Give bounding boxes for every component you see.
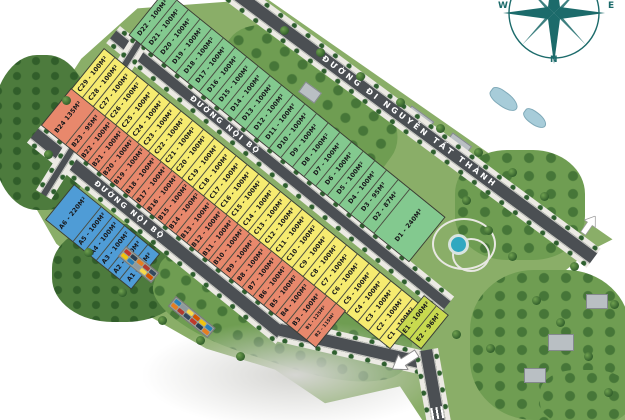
building	[548, 334, 574, 351]
compass-east-label: E	[608, 1, 614, 11]
tree-icon	[604, 388, 613, 397]
compass-north-label: N	[550, 55, 558, 65]
tree-icon	[118, 288, 127, 297]
tree-icon	[508, 252, 517, 261]
tree-icon	[486, 344, 495, 353]
pond	[521, 106, 550, 132]
tree-icon	[532, 296, 541, 305]
park-bottom-right	[540, 370, 625, 420]
plot-label-A6: A6 - 220M²	[58, 196, 88, 231]
pond	[487, 84, 522, 115]
tree-icon	[236, 352, 245, 361]
tree-icon	[436, 124, 445, 133]
tree-icon	[610, 300, 619, 309]
tree-icon	[196, 336, 205, 345]
playground-pool	[448, 234, 469, 255]
tree-icon	[484, 226, 493, 235]
tree-icon	[452, 330, 461, 339]
tree-icon	[316, 48, 325, 57]
tree-icon	[556, 318, 565, 327]
tree-icon	[44, 150, 53, 159]
building	[524, 368, 546, 383]
site-plan-map: ĐƯỜNG ĐI NGUYỄN TẤT THÀNH ĐƯỜNG NỘI BỘ Đ…	[0, 0, 625, 420]
tree-icon	[356, 72, 365, 81]
tree-icon	[158, 316, 167, 325]
building	[586, 294, 608, 309]
tree-icon	[62, 96, 71, 105]
tree-icon	[474, 148, 483, 157]
crosswalk	[430, 406, 444, 420]
tree-icon	[570, 262, 579, 271]
compass-west-label: W	[498, 1, 508, 11]
tree-icon	[540, 192, 549, 201]
tree-icon	[584, 352, 593, 361]
tree-icon	[462, 196, 471, 205]
tree-icon	[508, 168, 517, 177]
tree-icon	[396, 98, 405, 107]
tree-icon	[280, 26, 289, 35]
tree-icon	[84, 248, 93, 257]
plot-label-D1: D1 - 240M²	[394, 208, 424, 243]
compass-rose: W E N	[492, 0, 620, 68]
